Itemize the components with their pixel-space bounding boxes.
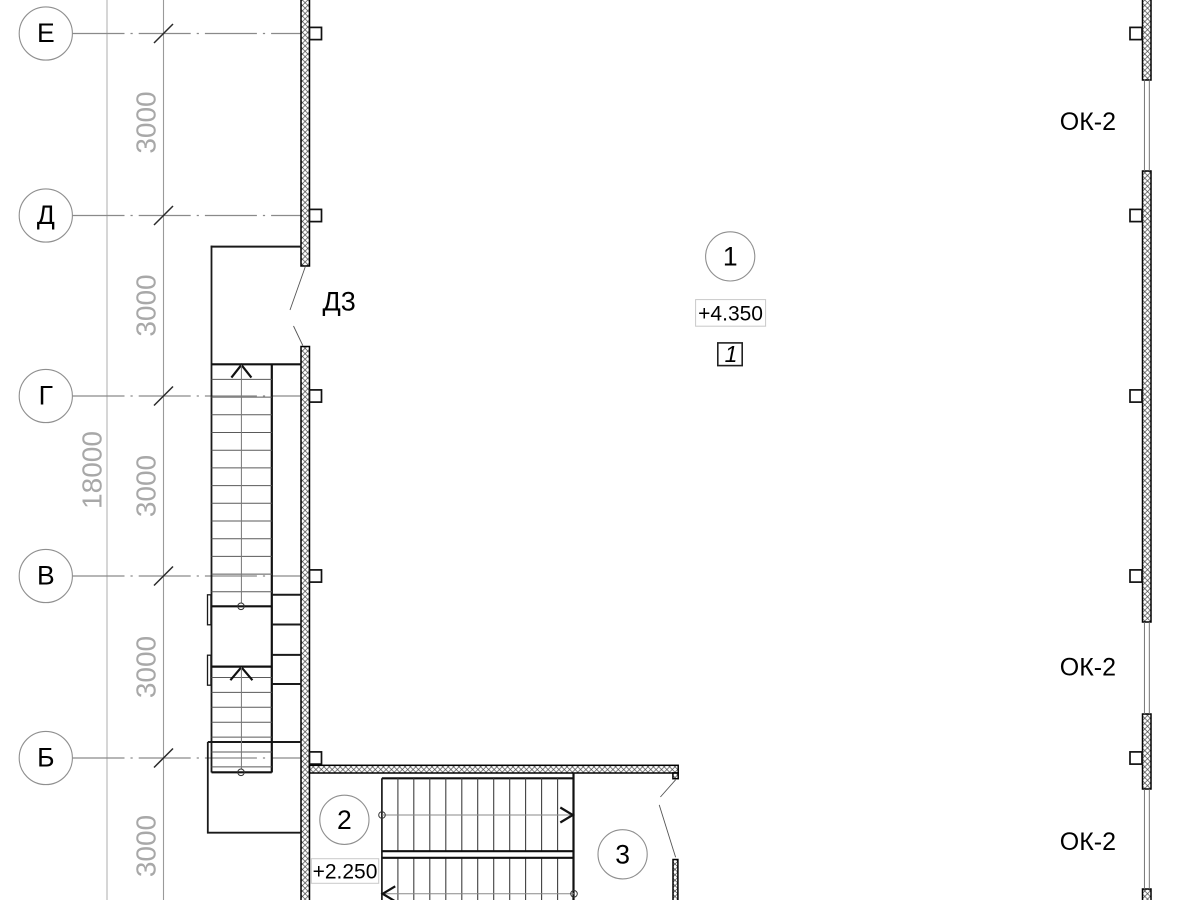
svg-text:Г: Г [39,380,53,410]
svg-text:Е: Е [37,18,55,48]
svg-text:18000: 18000 [77,431,108,509]
svg-text:ОК-2: ОК-2 [1060,828,1116,856]
svg-text:3000: 3000 [131,636,162,698]
svg-text:3000: 3000 [131,274,162,336]
svg-text:1: 1 [725,341,738,367]
svg-text:3000: 3000 [131,815,162,877]
svg-text:Д: Д [37,200,55,230]
svg-text:Д3: Д3 [323,287,356,317]
svg-text:+4.350: +4.350 [698,302,763,325]
svg-text:3000: 3000 [131,455,162,517]
svg-text:1: 1 [723,242,738,272]
svg-text:3: 3 [615,840,630,870]
svg-text:2: 2 [337,805,352,835]
svg-text:3000: 3000 [131,91,162,153]
svg-text:ОК-2: ОК-2 [1060,654,1116,682]
svg-text:В: В [37,560,55,590]
svg-text:+2.250: +2.250 [313,861,378,884]
svg-text:ОК-2: ОК-2 [1060,108,1116,136]
svg-text:Б: Б [37,742,54,772]
